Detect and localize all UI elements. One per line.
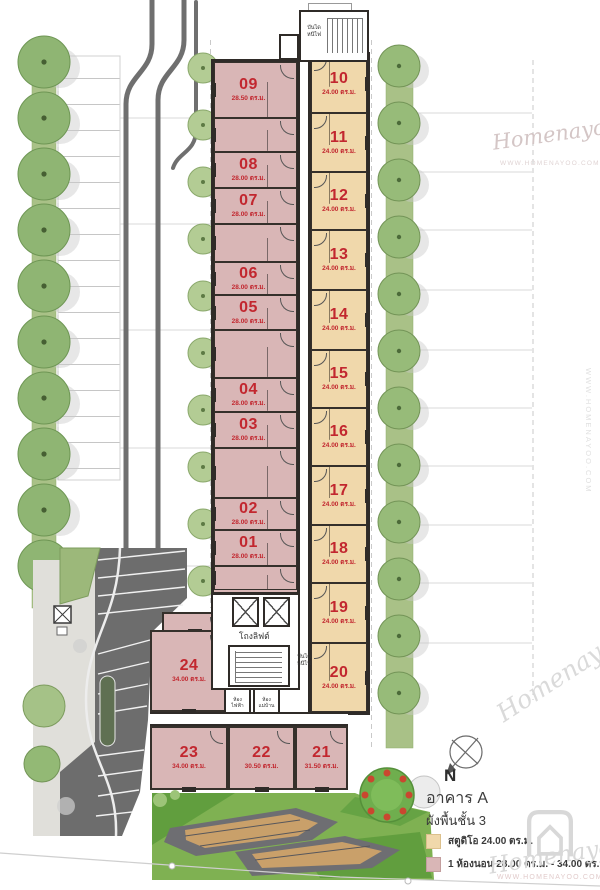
unit-20: 2024.00 ตร.ม. [311,643,367,712]
legend-label-studio: สตูดิโอ 24.00 ตร.ม. [448,834,533,849]
unit-number: 15 [330,366,349,382]
unit-area: 28.00 ตร.ม. [232,318,266,326]
unit-22: 2230.50 ตร.ม. [228,726,295,790]
elevator-shaft-2 [263,597,290,627]
unit-18: 1824.00 ตร.ม. [311,525,367,583]
unit-04: 0428.00 ตร.ม. [214,378,297,412]
unit-area: 28.00 ตร.ม. [232,400,266,408]
unit-number: 14 [330,307,349,323]
unit-area: 24.00 ตร.ม. [322,618,356,626]
unit-area: 34.00 ตร.ม. [172,763,206,771]
unit-number: 07 [239,193,258,209]
unit-05: 0528.00 ตร.ม. [214,295,297,330]
unit-area: 31.50 ตร.ม. [305,763,339,771]
watermark-url-top: WWW.HOMENAYOO.COM [500,160,600,167]
unit-area: 24.00 ตร.ม. [322,559,356,567]
lower-corridor [150,712,348,726]
unit-number: 03 [239,417,258,433]
unit-number: 23 [180,745,199,761]
unit-17: 1724.00 ตร.ม. [311,466,367,525]
legend-swatch-studio [426,834,441,849]
unit-number: 16 [330,424,349,440]
unit-slice [214,224,297,262]
unit-area: 28.00 ตร.ม. [232,553,266,561]
compass-icon: N [444,736,482,785]
electrical-room-label: ห้อง ไฟฟ้า [226,697,249,710]
unit-number: 20 [330,665,349,681]
unit-area: 24.00 ตร.ม. [322,683,356,691]
fire-stair-mid [228,645,290,687]
unit-11: 1124.00 ตร.ม. [311,113,367,172]
unit-09: 0928.50 ตร.ม. [214,62,297,118]
unit-02: 0228.00 ตร.ม. [214,498,297,530]
watermark-url-side: WWW.HOMENAYOO.COM [584,368,593,494]
unit-number: 19 [330,600,349,616]
unit-area: 24.00 ตร.ม. [322,265,356,273]
unit-slice [214,118,297,152]
unit-16: 1624.00 ตร.ม. [311,408,367,466]
unit-number: 13 [330,247,349,263]
legend-swatch-one-bedroom [426,857,441,872]
unit-number: 11 [330,130,348,146]
unit-number: 18 [330,541,349,557]
unit-number: 06 [239,266,258,282]
legend-row-studio: สตูดิโอ 24.00 ตร.ม. [426,834,533,849]
unit-number: 12 [330,188,349,204]
stair-treads [327,18,363,53]
unit-08: 0828.00 ตร.ม. [214,152,297,188]
unit-area: 28.00 ตร.ม. [232,519,266,527]
unit-area: 24.00 ตร.ม. [322,89,356,97]
unit-area: 24.00 ตร.ม. [322,325,356,333]
roads [126,0,196,556]
unit-10: 1024.00 ตร.ม. [311,55,367,113]
unit-area: 24.00 ตร.ม. [322,148,356,156]
unit-01: 0128.00 ตร.ม. [214,530,297,566]
unit-14: 1424.00 ตร.ม. [311,290,367,350]
unit-number: 05 [239,300,258,316]
unit-area: 28.00 ตร.ม. [232,211,266,219]
unit-area: 28.50 ตร.ม. [232,95,266,103]
unit-slice [214,330,297,378]
unit-number: 10 [330,71,349,87]
unit-slice [214,566,297,590]
unit-area: 28.00 ตร.ม. [232,284,266,292]
unit-07: 0728.00 ตร.ม. [214,188,297,224]
unit-area: 24.00 ตร.ม. [322,501,356,509]
unit-19: 1924.00 ตร.ม. [311,583,367,643]
unit-06: 0628.00 ตร.ม. [214,262,297,295]
elevator-shaft-1 [232,597,259,627]
unit-number: 04 [239,382,258,398]
unit-area: 34.00 ตร.ม. [172,676,206,684]
unit-area: 24.00 ตร.ม. [322,442,356,450]
unit-23: 2334.00 ตร.ม. [150,726,228,790]
unit-number: 09 [239,77,258,93]
floor-plan-page: N 0928.50 ตร.ม.0828.00 ตร.ม.0728.00 ตร.ม… [0,0,600,890]
flowering-tree [360,768,414,822]
lift-lobby-label: โถงลิฟต์ [239,629,270,643]
unit-number: 01 [239,535,258,551]
fire-stair-top: บันได หนีไฟ [299,10,369,62]
unit-21: 2131.50 ตร.ม. [295,726,348,790]
stair-treads [235,651,282,683]
unit-slice [214,448,297,498]
unit-area: 24.00 ตร.ม. [322,384,356,392]
shaft-box [279,34,299,60]
unit-area: 30.50 ตร.ม. [245,763,279,771]
unit-area: 24.00 ตร.ม. [322,206,356,214]
floor-plan-title: ผังพื้นชั้น 3 [426,810,486,831]
fire-stair-mid-label: บันได หนีไฟ [293,654,315,668]
unit-12: 1224.00 ตร.ม. [311,172,367,230]
unit-number: 24 [180,658,199,674]
unit-15: 1524.00 ตร.ม. [311,350,367,408]
unit-number: 17 [330,483,349,499]
unit-number: 22 [252,745,271,761]
unit-area: 28.00 ตร.ม. [232,435,266,443]
unit-area: 28.00 ตร.ม. [232,175,266,183]
unit-03: 0328.00 ตร.ม. [214,412,297,448]
unit-number: 08 [239,157,258,173]
right-tree-row [378,45,429,748]
unit-number: 21 [312,745,331,761]
compass-n-label: N [444,766,456,785]
maid-room-label: ห้อง แม่บ้าน [255,697,278,710]
fire-stair-top-label: บันได หนีไฟ [303,25,325,39]
unit-number: 02 [239,501,258,517]
building-title: อาคาร A [426,786,488,811]
unit-13: 1324.00 ตร.ม. [311,230,367,290]
watermark-url-bottom: WWW.HOMENAYOO.COM [497,874,600,881]
